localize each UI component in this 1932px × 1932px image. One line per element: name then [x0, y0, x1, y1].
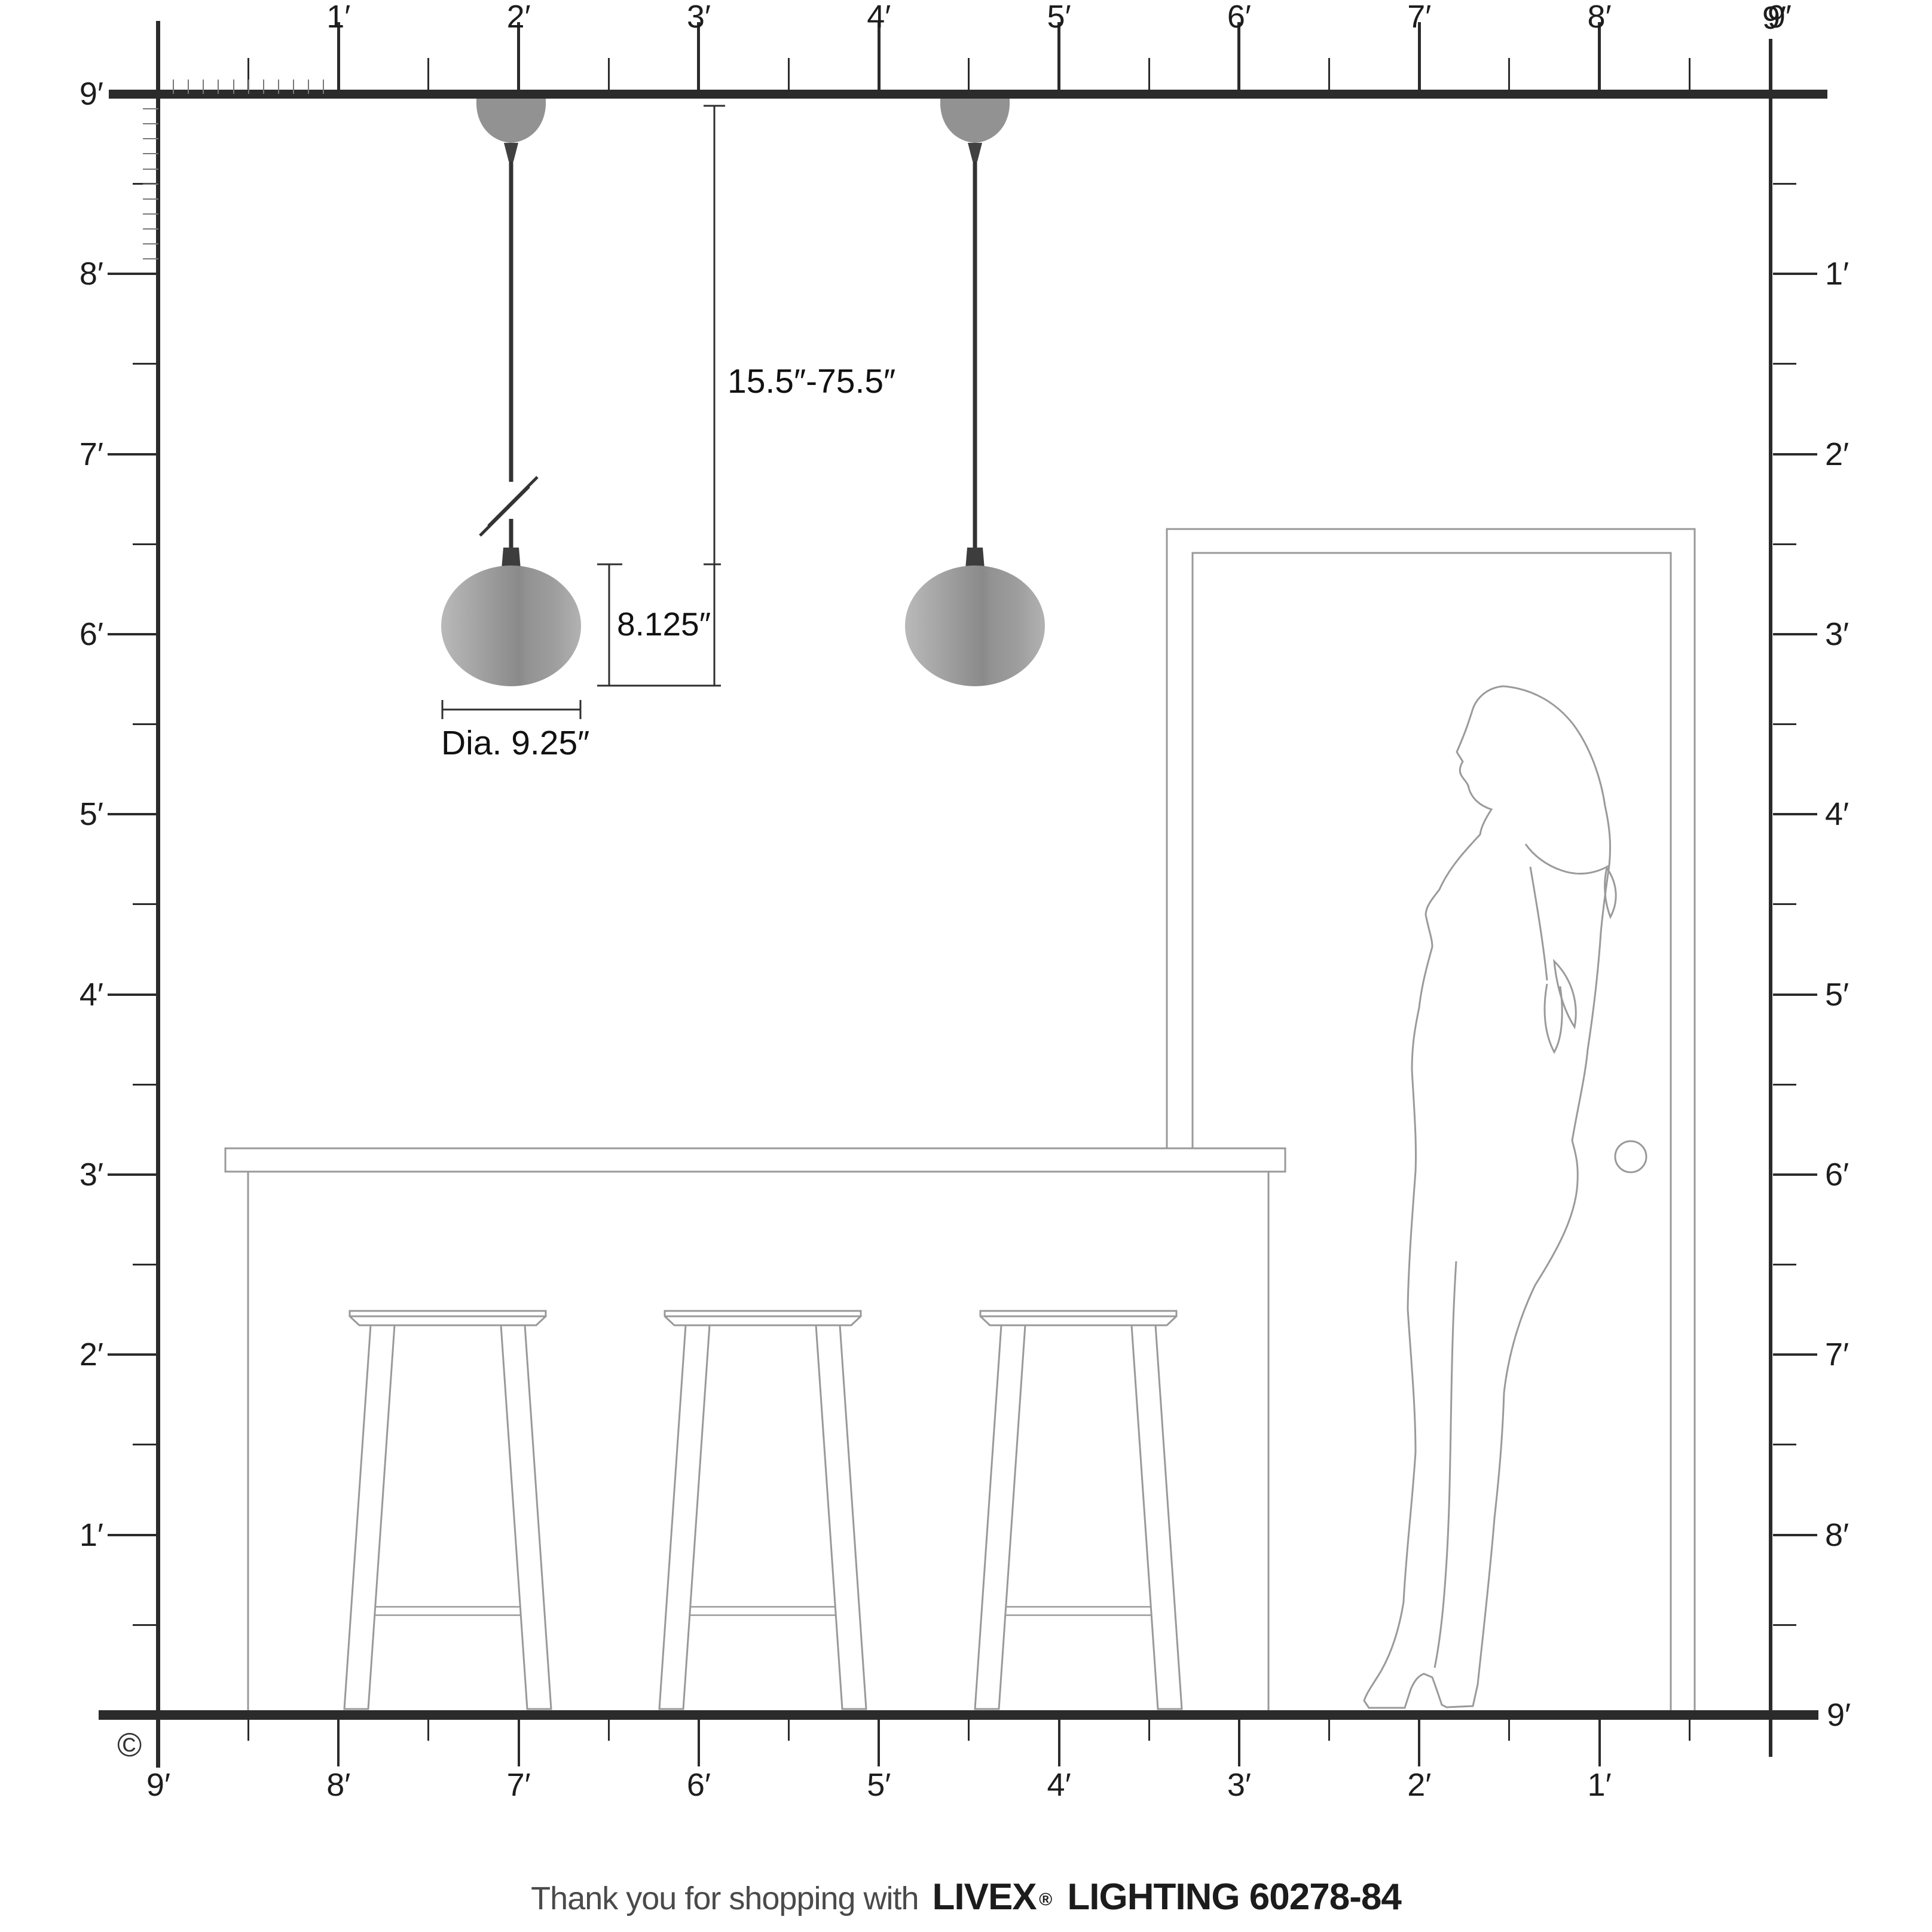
top-ruler-inch-tick — [293, 80, 294, 94]
bottom-ruler-foot-tick — [698, 1720, 700, 1766]
left-ruler-inch-tick — [143, 228, 158, 230]
pendant-cord — [973, 161, 977, 568]
bottom-ruler-label: 9′ — [123, 1768, 194, 1802]
left-ruler-inch-tick — [143, 138, 158, 139]
left-ruler-inch-tick — [143, 258, 158, 259]
room-scene — [0, 0, 1932, 1932]
left-ruler-inch-tick — [143, 153, 158, 154]
top-ruler-inch-tick — [233, 80, 234, 94]
right-ruler-half-foot-tick — [1773, 1264, 1796, 1265]
right-ruler-half-foot-tick — [1773, 723, 1796, 725]
top-ruler-label: 2′ — [483, 0, 555, 33]
pendant-light-right — [905, 99, 1045, 686]
top-ruler-inch-tick — [218, 80, 219, 94]
counter-top — [225, 1148, 1285, 1172]
right-ruler-foot-tick — [1773, 453, 1817, 456]
globe-shade — [905, 565, 1045, 686]
top-ruler-half-foot-tick — [427, 58, 429, 94]
bottom-ruler-half-foot-tick — [1148, 1720, 1150, 1741]
globe-shade — [441, 565, 581, 686]
top-ruler-half-foot-tick — [968, 58, 970, 94]
left-ruler-foot-tick — [108, 1353, 158, 1356]
left-ruler-inch-tick — [143, 213, 158, 215]
left-ruler-half-foot-tick — [133, 1264, 158, 1265]
bottom-ruler-half-foot-tick — [247, 1720, 249, 1741]
right-ruler-half-foot-tick — [1773, 1444, 1796, 1445]
footer: Thank you for shopping with LIVEX ® LIGH… — [0, 1876, 1932, 1918]
stool-stretcher — [673, 1607, 852, 1615]
bottom-ruler-foot-tick — [518, 1720, 520, 1766]
left-ruler-label: 4′ — [27, 978, 103, 1011]
right-ruler-foot-tick — [1773, 1173, 1817, 1176]
bottom-ruler-foot-tick — [1238, 1720, 1240, 1766]
right-ruler-foot-tick — [1773, 273, 1817, 275]
hang-range-label: 15.5″-75.5″ — [727, 362, 895, 401]
left-ruler-label: 3′ — [27, 1158, 103, 1191]
left-ruler-foot-tick — [108, 993, 158, 996]
shade-diameter-label: Dia. 9.25″ — [441, 723, 585, 763]
left-ruler-label: 2′ — [27, 1338, 103, 1371]
right-ruler-label: 9′ — [1827, 1698, 1899, 1732]
left-ruler-half-foot-tick — [133, 723, 158, 725]
bottom-ruler-foot-tick — [1598, 1720, 1601, 1766]
top-ruler-half-foot-tick — [1508, 58, 1510, 94]
left-ruler-inch-tick — [143, 243, 158, 244]
left-ruler-foot-tick — [108, 273, 158, 275]
bottom-ruler-half-foot-tick — [608, 1720, 610, 1741]
canopy-stem — [968, 143, 982, 161]
footer-space — [1055, 1876, 1065, 1918]
copyright-symbol: © — [117, 1725, 142, 1764]
footer-space — [921, 1881, 930, 1916]
bottom-ruler-label: 8′ — [302, 1768, 374, 1802]
left-ruler-inch-tick — [143, 123, 158, 124]
top-ruler-label: 4′ — [843, 0, 915, 33]
top-ruler-half-foot-tick — [608, 58, 610, 94]
bottom-ruler-label: 7′ — [483, 1768, 555, 1802]
right-ruler-label: 6′ — [1825, 1158, 1897, 1191]
bottom-ruler-label: 1′ — [1564, 1768, 1636, 1802]
installation-height-diagram: 1′2′3′4′5′6′7′8′9′9′8′7′6′5′4′3′2′1′9′1′… — [0, 0, 1932, 1932]
woman-outline — [1364, 686, 1610, 1708]
left-ruler-half-foot-tick — [133, 903, 158, 905]
right-ruler-foot-tick — [1773, 1353, 1817, 1356]
bottom-ruler-label: 2′ — [1383, 1768, 1455, 1802]
bottom-ruler-label: 5′ — [843, 1768, 915, 1802]
bottom-ruler-half-foot-tick — [1328, 1720, 1330, 1741]
left-ruler-label: 5′ — [27, 797, 103, 831]
bottom-ruler-half-foot-tick — [1689, 1720, 1690, 1741]
right-ruler-label: 2′ — [1825, 438, 1897, 471]
right-ruler-half-foot-tick — [1773, 1624, 1796, 1626]
left-ruler-foot-tick — [108, 633, 158, 635]
bottom-ruler-label: 3′ — [1203, 1768, 1275, 1802]
bottom-ruler-half-foot-tick — [427, 1720, 429, 1741]
stool-seat — [665, 1311, 861, 1325]
top-ruler-label: 1′ — [302, 0, 374, 33]
left-ruler-label: 6′ — [27, 617, 103, 651]
right-ruler-line — [1769, 39, 1772, 1757]
top-ruler-half-foot-tick — [788, 58, 790, 94]
left-ruler-foot-tick — [108, 813, 158, 815]
ceiling-canopy — [476, 99, 546, 143]
left-ruler-inch-tick — [143, 198, 158, 200]
left-ruler-foot-tick — [108, 1173, 158, 1176]
top-ruler-inch-tick — [278, 80, 279, 94]
bottom-ruler-foot-tick — [1418, 1720, 1420, 1766]
left-ruler-half-foot-tick — [133, 543, 158, 545]
right-ruler-label: 5′ — [1825, 978, 1897, 1011]
bottom-ruler-half-foot-tick — [788, 1720, 790, 1741]
bottom-ruler-foot-tick — [337, 1720, 340, 1766]
left-ruler-half-foot-tick — [133, 1444, 158, 1445]
top-ruler-inch-tick — [203, 80, 204, 94]
pendant-light-left — [441, 99, 581, 686]
bottom-ruler-foot-tick — [1058, 1720, 1060, 1766]
top-ruler-inch-tick — [248, 80, 249, 94]
left-ruler-foot-tick — [108, 1534, 158, 1536]
bottom-ruler-foot-tick — [878, 1720, 880, 1766]
left-ruler-label: 9′ — [27, 77, 103, 111]
top-ruler-inch-tick — [263, 80, 264, 94]
top-ruler-half-foot-tick — [1689, 58, 1690, 94]
right-ruler-half-foot-tick — [1773, 183, 1796, 185]
right-ruler-half-foot-tick — [1773, 903, 1796, 905]
floor-line — [99, 1710, 1818, 1720]
right-ruler-label: 1′ — [1825, 257, 1897, 291]
canopy-stem — [504, 143, 518, 161]
top-ruler-half-foot-tick — [1328, 58, 1330, 94]
right-ruler-label: 9′ — [1762, 1, 1834, 35]
left-ruler-inch-tick — [143, 108, 158, 109]
right-ruler-label: 7′ — [1825, 1338, 1897, 1371]
product-number: LIGHTING 60278-84 — [1067, 1876, 1401, 1918]
top-ruler-label: 5′ — [1023, 0, 1095, 33]
bottom-ruler-label: 6′ — [663, 1768, 735, 1802]
top-ruler-label: 7′ — [1383, 0, 1455, 33]
top-ruler-inch-tick — [308, 80, 309, 94]
left-ruler-label: 8′ — [27, 257, 103, 291]
shade-height-label: 8.125″ — [617, 605, 711, 643]
brand-name: LIVEX — [933, 1876, 1037, 1918]
registered-trademark-symbol: ® — [1039, 1890, 1052, 1910]
left-ruler-label: 7′ — [27, 438, 103, 471]
left-ruler-label: 1′ — [27, 1518, 103, 1552]
bottom-ruler-half-foot-tick — [968, 1720, 970, 1741]
top-ruler-label: 3′ — [663, 0, 735, 33]
left-ruler-half-foot-tick — [133, 363, 158, 365]
stool-stretcher — [358, 1607, 537, 1615]
right-ruler-foot-tick — [1773, 993, 1817, 996]
door-knob — [1615, 1141, 1646, 1172]
left-ruler-inch-tick — [143, 184, 158, 185]
bottom-ruler-half-foot-tick — [1508, 1720, 1510, 1741]
left-ruler-inch-tick — [143, 169, 158, 170]
bottom-ruler-label: 4′ — [1023, 1768, 1095, 1802]
top-ruler-inch-tick — [188, 80, 189, 94]
stool-seat — [350, 1311, 546, 1325]
stool-stretcher — [989, 1607, 1168, 1615]
top-ruler-inch-tick — [323, 80, 324, 94]
top-ruler-label: 8′ — [1564, 0, 1636, 33]
stool-seat — [980, 1311, 1176, 1325]
right-ruler-half-foot-tick — [1773, 363, 1796, 365]
counter-cabinet — [248, 1172, 1268, 1710]
right-ruler-foot-tick — [1773, 633, 1817, 635]
right-ruler-label: 4′ — [1825, 797, 1897, 831]
right-ruler-foot-tick — [1773, 813, 1817, 815]
right-ruler-label: 3′ — [1825, 617, 1897, 651]
right-ruler-half-foot-tick — [1773, 543, 1796, 545]
right-ruler-label: 8′ — [1825, 1518, 1897, 1552]
left-ruler-half-foot-tick — [133, 1084, 158, 1086]
left-ruler-half-foot-tick — [133, 1624, 158, 1626]
top-ruler-half-foot-tick — [1148, 58, 1150, 94]
top-ruler-inch-tick — [173, 80, 174, 94]
woman-silhouette — [1364, 686, 1616, 1708]
right-ruler-foot-tick — [1773, 1534, 1817, 1536]
top-ruler-label: 6′ — [1203, 0, 1275, 33]
ceiling-canopy — [940, 99, 1010, 143]
left-ruler-line — [156, 21, 160, 1768]
footer-message: Thank you for shopping with — [531, 1881, 918, 1916]
left-ruler-foot-tick — [108, 453, 158, 456]
right-ruler-half-foot-tick — [1773, 1084, 1796, 1086]
